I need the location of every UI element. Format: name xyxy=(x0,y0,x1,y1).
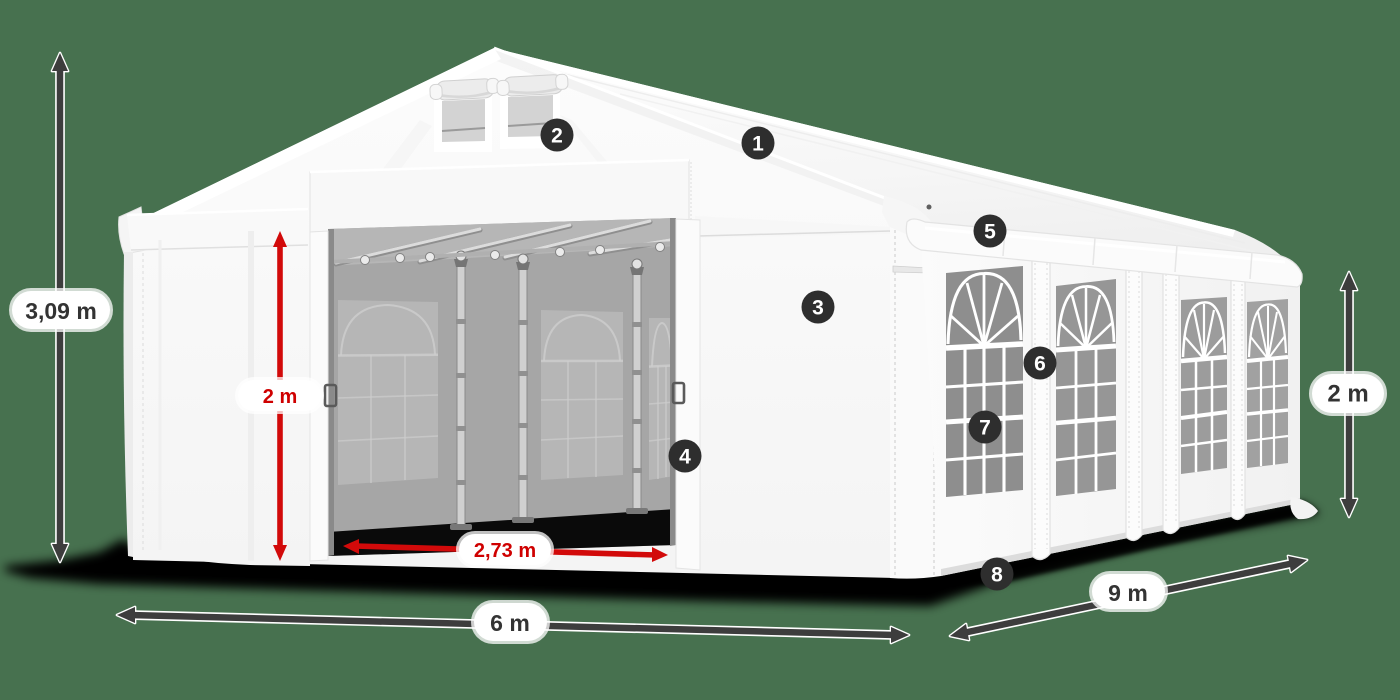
svg-text:2,73 m: 2,73 m xyxy=(474,540,536,562)
svg-text:2 m: 2 m xyxy=(1327,381,1368,408)
svg-text:2: 2 xyxy=(551,125,563,148)
svg-text:2 m: 2 m xyxy=(263,386,297,408)
svg-text:5: 5 xyxy=(984,221,996,244)
svg-text:4: 4 xyxy=(679,446,691,469)
svg-text:3: 3 xyxy=(812,297,824,320)
svg-text:6: 6 xyxy=(1034,353,1046,376)
svg-text:8: 8 xyxy=(991,564,1003,587)
svg-text:3,09 m: 3,09 m xyxy=(25,298,97,324)
svg-text:9 m: 9 m xyxy=(1108,580,1148,606)
svg-text:7: 7 xyxy=(979,417,991,440)
svg-text:1: 1 xyxy=(752,133,764,156)
svg-text:6 m: 6 m xyxy=(490,610,530,636)
